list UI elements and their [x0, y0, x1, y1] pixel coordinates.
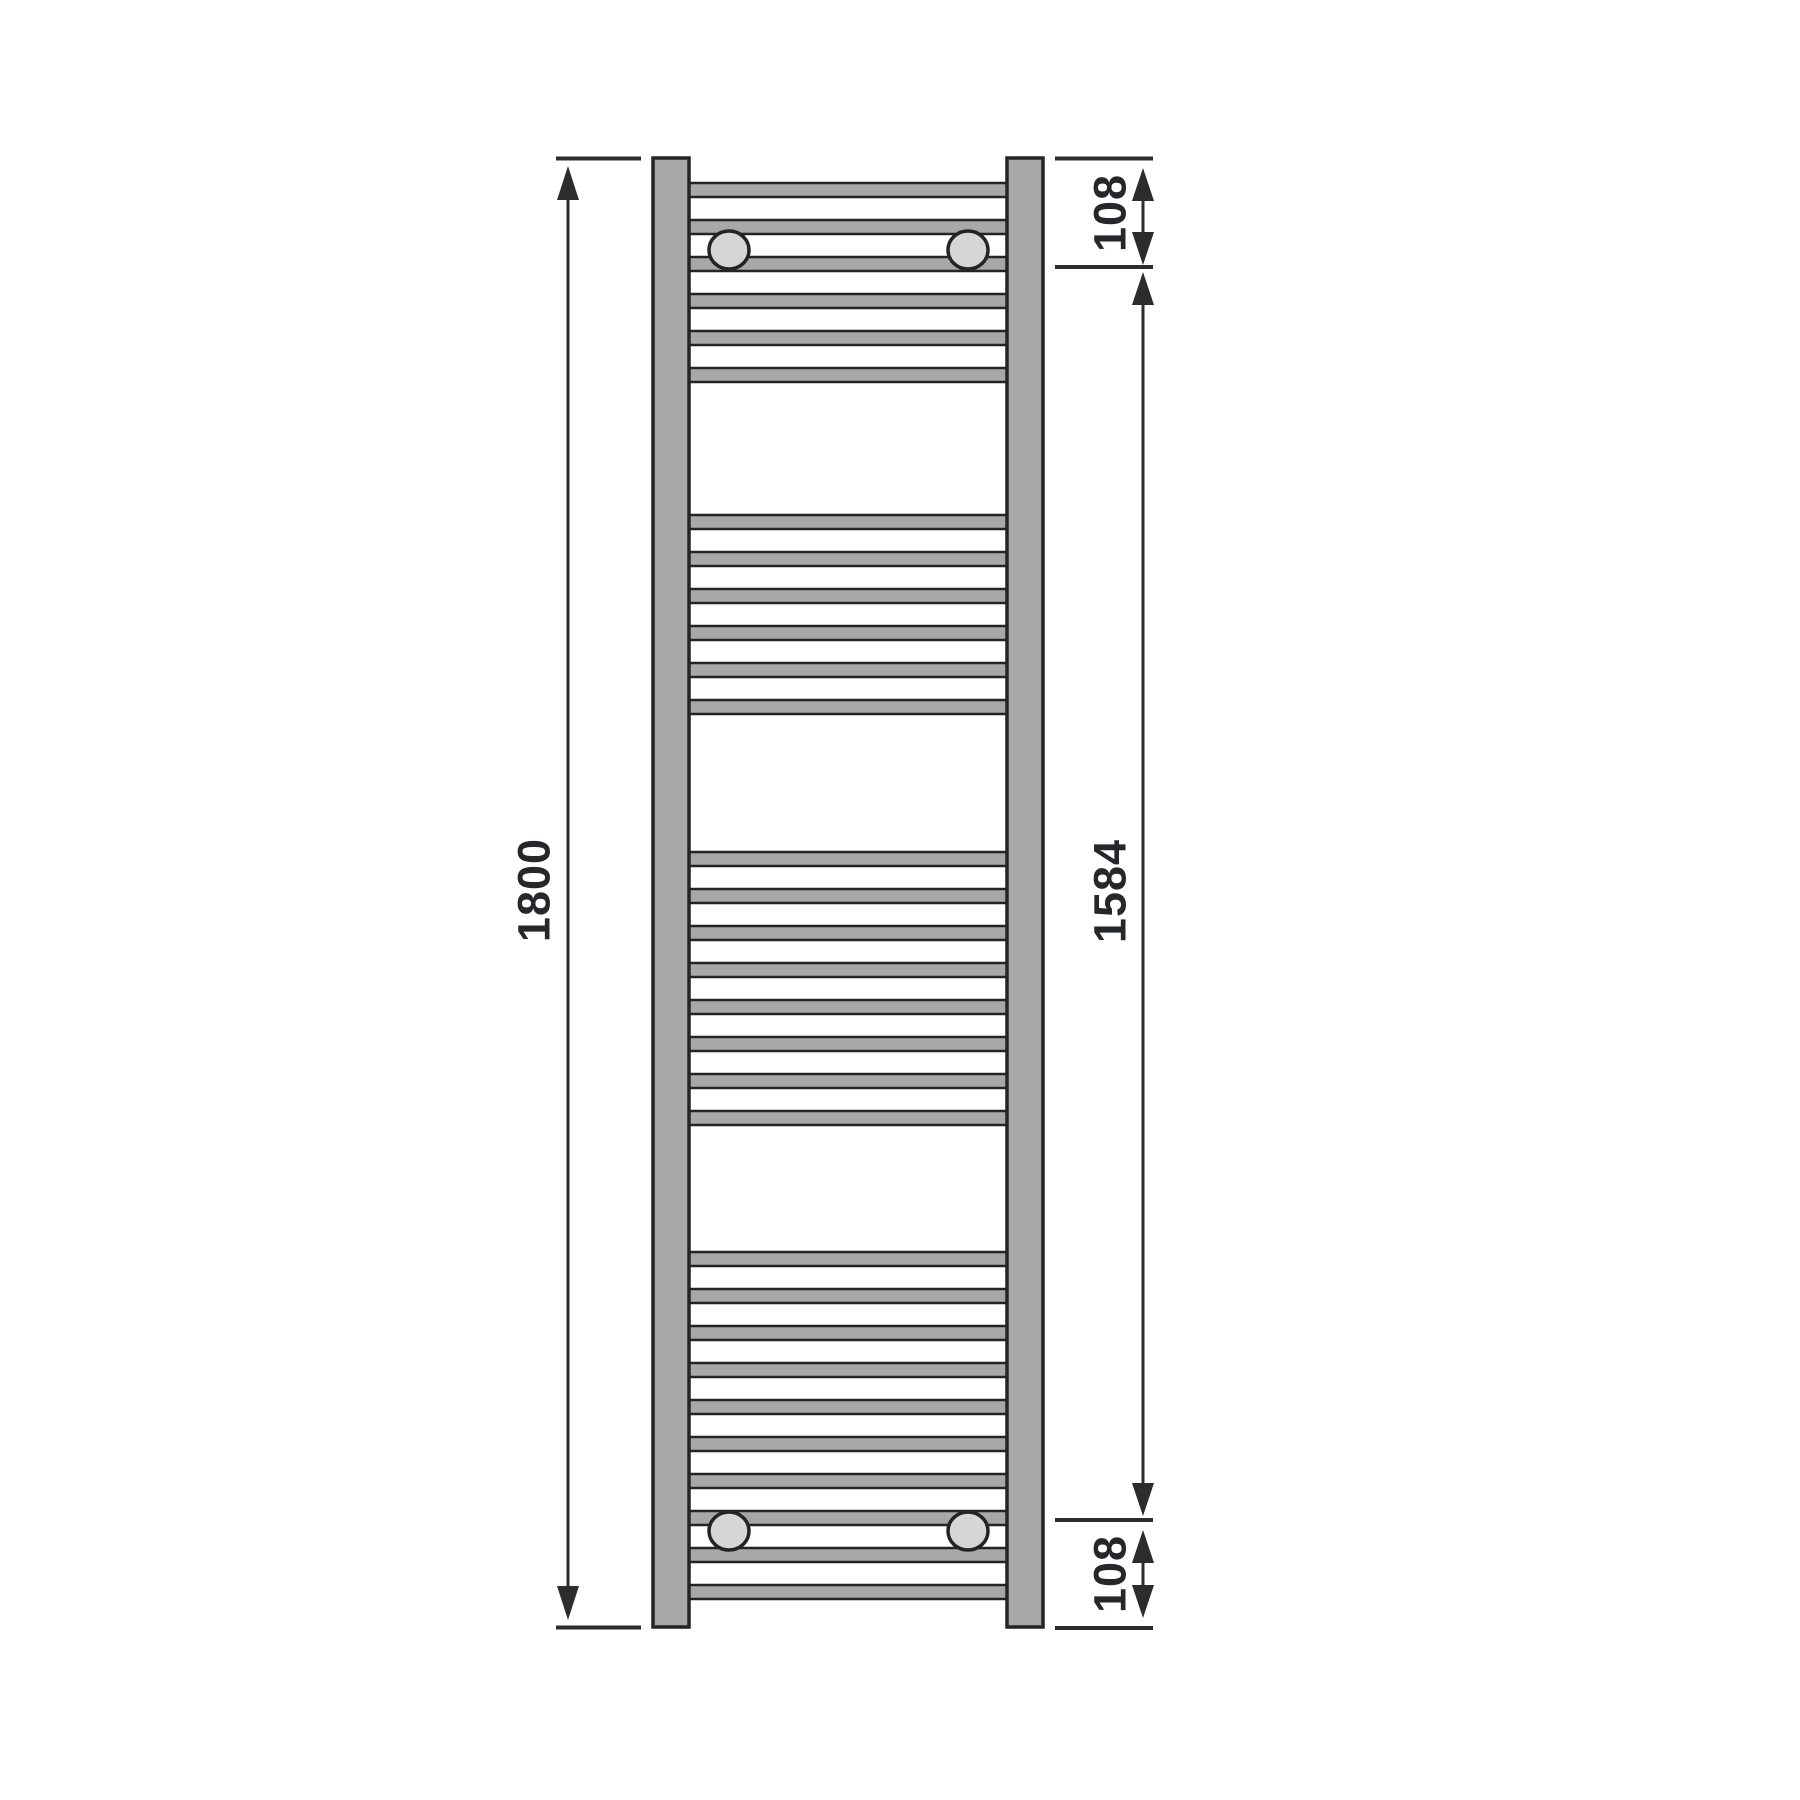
- dim-overall-height: 1800: [509, 159, 642, 1628]
- towel-rail-rung: [683, 294, 1013, 308]
- wall-bracket-boss: [709, 231, 749, 269]
- towel-rail-rung: [683, 1074, 1013, 1088]
- towel-rail-rung: [683, 663, 1013, 677]
- dim-bottom-offset: 108: [1055, 1520, 1154, 1628]
- towel-rail-rung: [683, 1111, 1013, 1125]
- dim-label-top-offset: 108: [1085, 174, 1136, 252]
- towel-rail-rung: [683, 1437, 1013, 1451]
- towel-rail-rung: [683, 1289, 1013, 1303]
- towel-rail-rung: [683, 331, 1013, 345]
- diagram-canvas: 1800 108 1584 108: [0, 0, 1800, 1800]
- left-tube: [653, 158, 689, 1627]
- towel-rail-rung: [683, 1326, 1013, 1340]
- wall-bracket-boss: [948, 231, 988, 269]
- towel-rail-rung: [683, 1363, 1013, 1377]
- radiator-dimension-drawing: 1800 108 1584 108: [0, 0, 1800, 1800]
- towel-rail-rung: [683, 626, 1013, 640]
- dim-bracket-spacing: 1584: [1085, 272, 1155, 1516]
- dim-1584-arrow-down-icon: [1132, 1483, 1154, 1516]
- dim-label-bottom-offset: 108: [1085, 1535, 1136, 1613]
- dim-label-overall-height: 1800: [509, 838, 560, 942]
- towel-rail-rung: [683, 852, 1013, 866]
- towel-rail-rung: [683, 552, 1013, 566]
- towel-rail-rung: [683, 589, 1013, 603]
- towel-rail-rung: [683, 1252, 1013, 1266]
- towel-rail-rung: [683, 1400, 1013, 1414]
- towel-rail-rung: [683, 1037, 1013, 1051]
- towel-rail-rung: [683, 963, 1013, 977]
- wall-bracket-boss: [948, 1512, 988, 1550]
- right-tube: [1007, 158, 1043, 1627]
- dim-1800-arrow-down-icon: [557, 1586, 579, 1620]
- towel-rail-rung: [683, 1474, 1013, 1488]
- dim-top-offset: 108: [1055, 159, 1154, 268]
- towel-rail-rungs: [683, 183, 1013, 1599]
- wall-bracket-boss: [709, 1512, 749, 1550]
- towel-rail-rung: [683, 368, 1013, 382]
- dim-1800-arrow-up-icon: [557, 166, 579, 200]
- towel-rail-rung: [683, 700, 1013, 714]
- towel-rail-rung: [683, 183, 1013, 197]
- towel-rail-rung: [683, 889, 1013, 903]
- dim-1584-arrow-up-icon: [1132, 272, 1154, 305]
- towel-rail-rung: [683, 515, 1013, 529]
- towel-rail-rung: [683, 1000, 1013, 1014]
- towel-rail-rung: [683, 926, 1013, 940]
- towel-rail-rung: [683, 1585, 1013, 1599]
- dim-label-bracket-spacing: 1584: [1085, 839, 1136, 943]
